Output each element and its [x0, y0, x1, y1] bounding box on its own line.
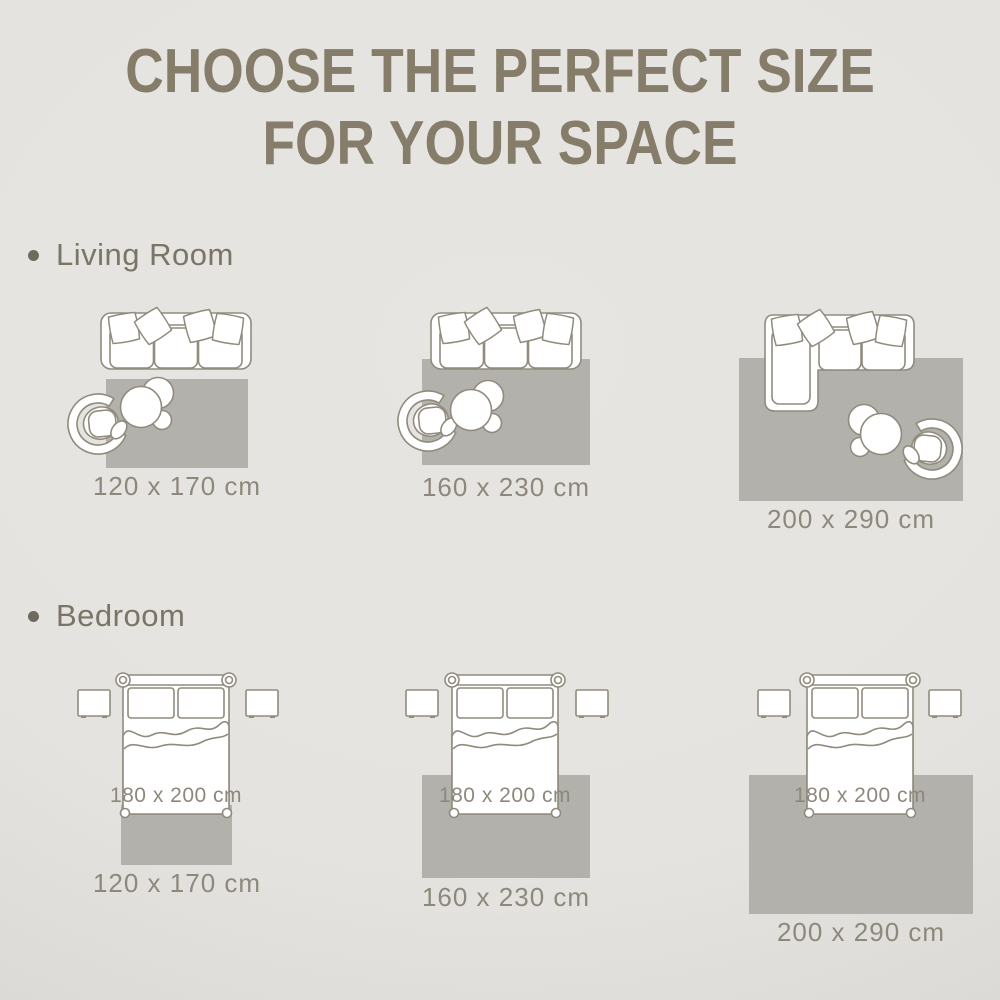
bedroom-scene-1-illustration [55, 665, 295, 875]
living-room-scene-1: 120 x 170 cm [55, 300, 305, 530]
nightstand-icon [246, 690, 278, 718]
page-title-line-2: FOR YOUR SPACE [70, 108, 930, 180]
rug-size-label: 120 x 170 cm [57, 868, 297, 899]
page-title: CHOOSE THE PERFECT SIZE FOR YOUR SPACE [0, 36, 1000, 180]
bedroom-section-header: Bedroom [28, 598, 185, 634]
bed-size-label: 180 x 200 cm [385, 784, 625, 808]
bedroom-section-label: Bedroom [56, 598, 185, 634]
living-room-scene-3: 200 x 290 cm [715, 300, 995, 545]
bedroom-scene-1: 180 x 200 cm 120 x 170 cm [55, 665, 295, 915]
rug-size-label: 160 x 230 cm [381, 472, 631, 503]
bullet-icon [28, 250, 39, 261]
bedroom-scene-2: 180 x 200 cm 160 x 230 cm [385, 665, 625, 925]
living-room-section-header: Living Room [28, 237, 234, 273]
bedroom-scene-3: 180 x 200 cm 200 x 290 cm [710, 665, 1000, 960]
nightstand-icon [78, 690, 110, 718]
nightstand-icon [758, 690, 790, 718]
rug-size-label: 160 x 230 cm [386, 882, 626, 913]
living-room-section-label: Living Room [56, 237, 234, 273]
nightstand-icon [406, 690, 438, 718]
bed-size-label: 180 x 200 cm [56, 784, 296, 808]
nightstand-icon [576, 690, 608, 718]
page-title-line-1: CHOOSE THE PERFECT SIZE [70, 36, 930, 108]
nightstand-icon [929, 690, 961, 718]
rug-size-label: 120 x 170 cm [52, 471, 302, 502]
bullet-icon [28, 611, 39, 622]
rug-size-label: 200 x 290 cm [716, 917, 1000, 948]
sofa-icon [428, 300, 585, 369]
bedroom-scene-2-illustration [385, 665, 625, 890]
living-room-scene-2: 160 x 230 cm [385, 300, 635, 530]
rug-size-infographic: CHOOSE THE PERFECT SIZE FOR YOUR SPACE L… [0, 0, 1000, 1000]
bed-size-label: 180 x 200 cm [715, 784, 1000, 808]
rug-size-label: 200 x 290 cm [711, 504, 991, 535]
sofa-icon [98, 300, 255, 369]
